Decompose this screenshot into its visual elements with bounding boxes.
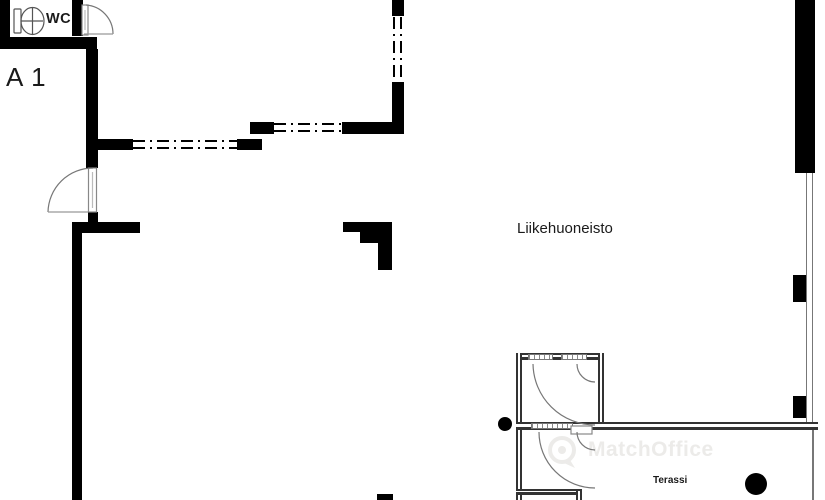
vestibule-door-icon: [539, 426, 595, 488]
door-linework: [0, 0, 825, 500]
floor-plan: MatchOffice: [0, 0, 825, 500]
column-dot: [498, 417, 512, 431]
toilet-icon: [14, 8, 44, 35]
vestibule-door-icon: [533, 364, 595, 425]
unit-label: A 1: [6, 62, 47, 93]
column-dot: [745, 473, 767, 495]
entry-door-icon: [48, 168, 97, 212]
terrace-label: Terassi: [653, 475, 687, 486]
wc-label: WC: [46, 11, 71, 27]
wc-door-icon: [82, 5, 113, 35]
room-label: Liikehuoneisto: [517, 220, 613, 237]
